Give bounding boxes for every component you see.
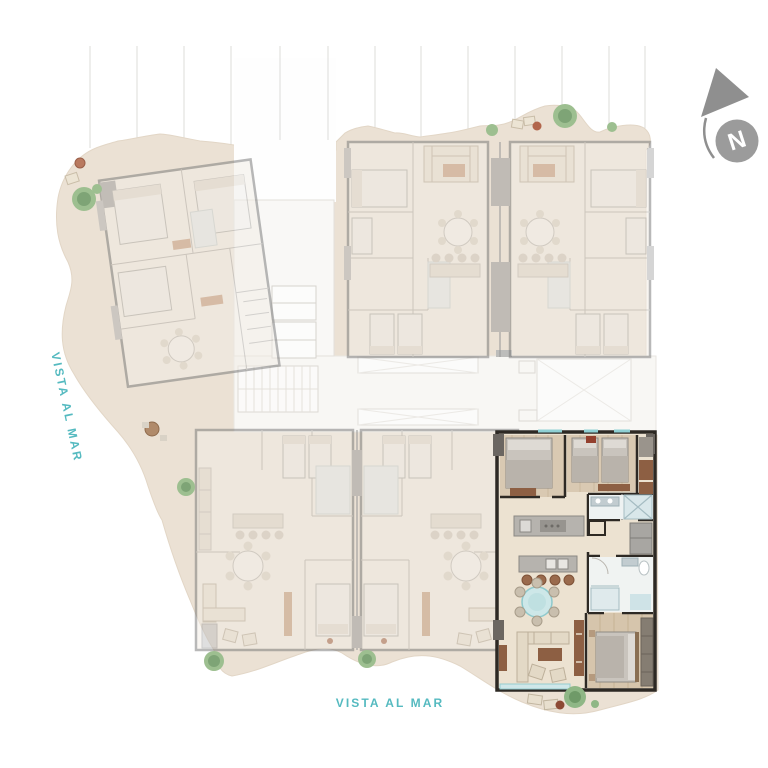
north-compass-icon: N [701, 68, 759, 163]
bed [506, 438, 552, 488]
label-vista-al-mar-bottom: VISTA AL MAR [328, 696, 452, 710]
floorplan-page: N VISTA AL MAR VISTA AL MAR [0, 0, 768, 768]
unit-bottom-middle[interactable] [361, 430, 518, 650]
compass-needle [701, 68, 749, 117]
floor-plan-canvas: N [0, 0, 768, 768]
unit-top-middle-left[interactable] [344, 142, 488, 357]
core-stairs [238, 366, 318, 412]
bed [596, 632, 639, 682]
plant [607, 122, 617, 132]
unit-top-middle-right[interactable] [510, 142, 654, 357]
unit-bottom-left[interactable] [196, 430, 353, 650]
plant [486, 124, 498, 136]
unit-highlighted[interactable] [493, 431, 655, 690]
